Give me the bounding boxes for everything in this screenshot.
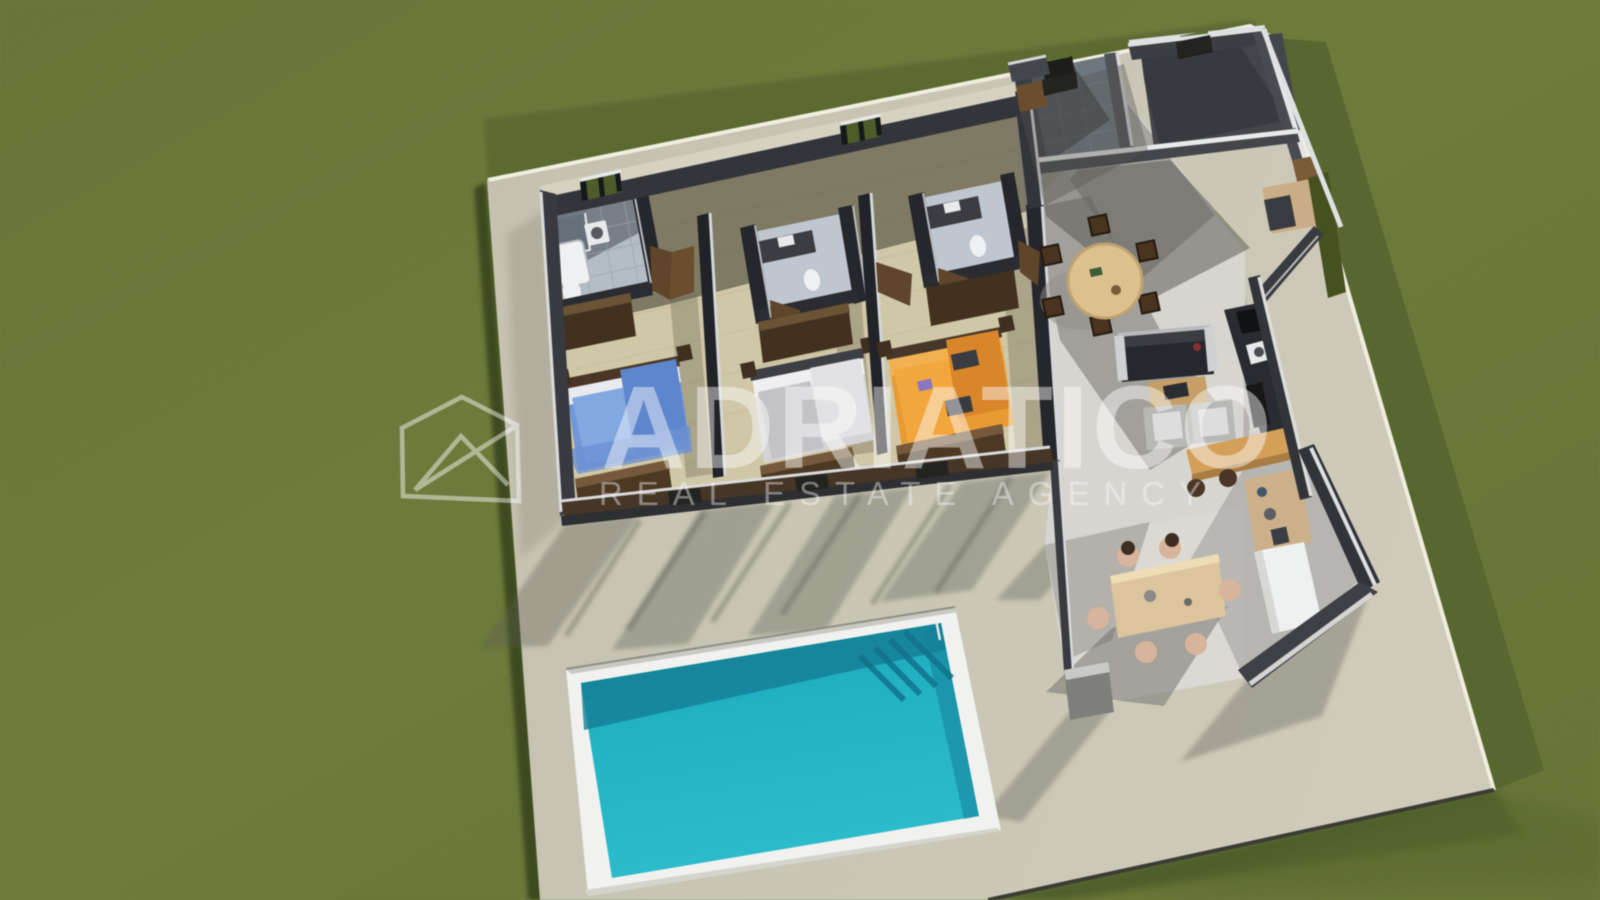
svg-text:REAL ESTATE AGENCY: REAL ESTATE AGENCY	[599, 475, 1215, 512]
